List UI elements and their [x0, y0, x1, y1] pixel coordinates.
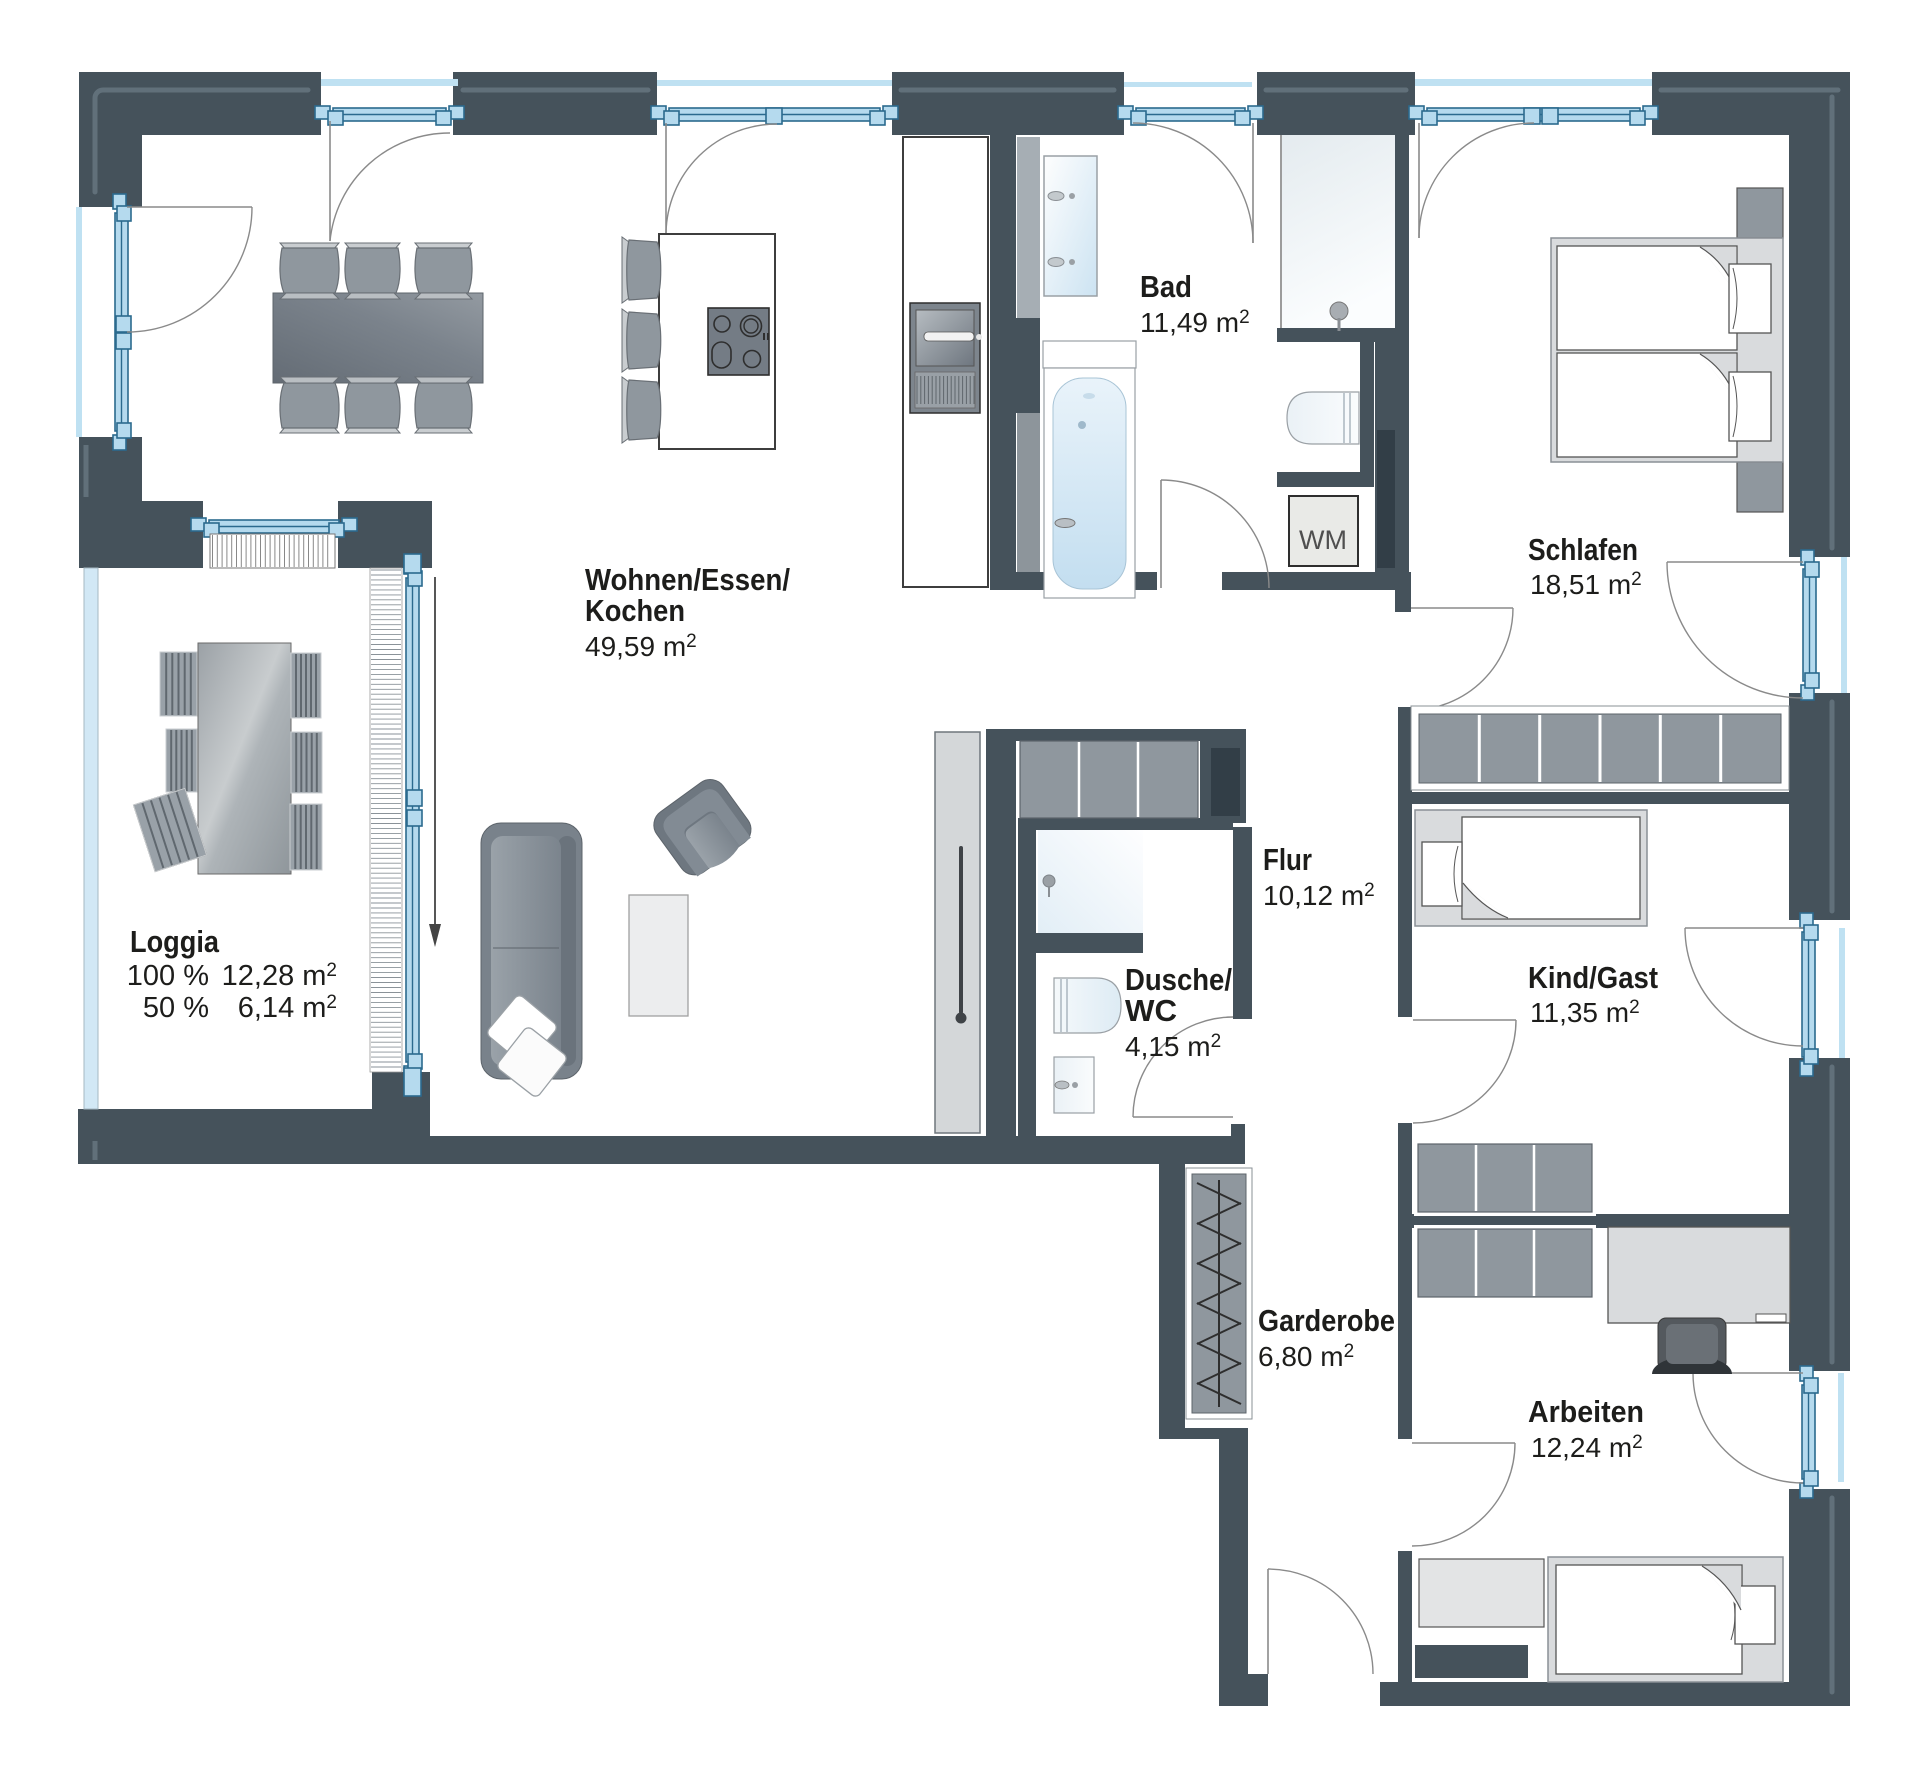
svg-text:18,51 m2: 18,51 m2	[1530, 569, 1642, 600]
svg-text:Flur: Flur	[1263, 842, 1312, 877]
svg-text:10,12 m2: 10,12 m2	[1263, 880, 1375, 911]
svg-text:50 %: 50 %	[143, 992, 209, 1024]
svg-text:Schlafen: Schlafen	[1528, 532, 1638, 567]
svg-text:Wohnen/Essen/: Wohnen/Essen/	[585, 562, 790, 597]
svg-text:Bad: Bad	[1140, 269, 1192, 304]
svg-text:12,28 m2: 12,28 m2	[222, 960, 337, 992]
svg-text:Kind/Gast: Kind/Gast	[1528, 960, 1658, 995]
svg-text:WC: WC	[1125, 993, 1177, 1028]
svg-text:6,80 m2: 6,80 m2	[1258, 1341, 1354, 1372]
svg-text:49,59 m2: 49,59 m2	[585, 631, 697, 662]
svg-text:6,14 m2: 6,14 m2	[238, 992, 337, 1024]
svg-text:4,15 m2: 4,15 m2	[1125, 1031, 1221, 1062]
svg-text:Dusche/: Dusche/	[1125, 962, 1232, 997]
svg-text:WM: WM	[1299, 525, 1347, 555]
svg-text:100 %: 100 %	[127, 960, 209, 992]
svg-text:Loggia: Loggia	[130, 924, 220, 959]
svg-text:Kochen: Kochen	[585, 593, 685, 628]
svg-text:11,49 m2: 11,49 m2	[1140, 307, 1250, 338]
svg-text:12,24 m2: 12,24 m2	[1531, 1432, 1643, 1463]
svg-text:Garderobe: Garderobe	[1258, 1303, 1395, 1338]
svg-text:Arbeiten: Arbeiten	[1528, 1394, 1644, 1429]
svg-text:11,35 m2: 11,35 m2	[1530, 997, 1640, 1028]
